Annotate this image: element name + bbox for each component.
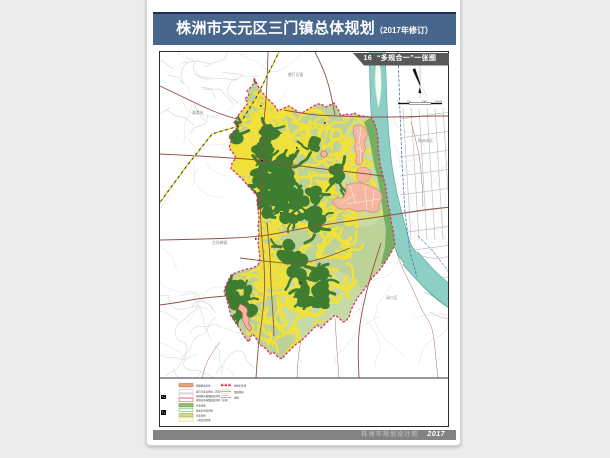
svg-text:镇域界线: 镇域界线 xyxy=(234,390,244,394)
svg-text:城市开发边界线（2020）: 城市开发边界线（2020） xyxy=(196,390,223,394)
svg-text:规划区界线: 规划区界线 xyxy=(234,384,247,388)
svg-text:古岳峰镇: 古岳峰镇 xyxy=(212,240,227,245)
svg-text:1500M: 1500M xyxy=(435,101,442,103)
svg-text:1000: 1000 xyxy=(422,101,428,103)
svg-text:渌口区: 渌口区 xyxy=(386,295,398,300)
svg-text:道路: 道路 xyxy=(234,396,239,400)
svg-text:一般农田用地: 一般农田用地 xyxy=(196,418,211,422)
svg-text:生态用地: 生态用地 xyxy=(196,404,206,408)
svg-text:城镇建设用地: 城镇建设用地 xyxy=(196,384,211,388)
svg-text:湘潭市: 湘潭市 xyxy=(192,110,204,115)
svg-text:雷打石镇: 雷打石镇 xyxy=(288,72,303,77)
svg-text:基本农田保护线: 基本农田保护线 xyxy=(196,408,213,412)
svg-text:农业用地: 农业用地 xyxy=(196,413,206,417)
svg-text:株洲市区: 株洲市区 xyxy=(418,138,433,143)
